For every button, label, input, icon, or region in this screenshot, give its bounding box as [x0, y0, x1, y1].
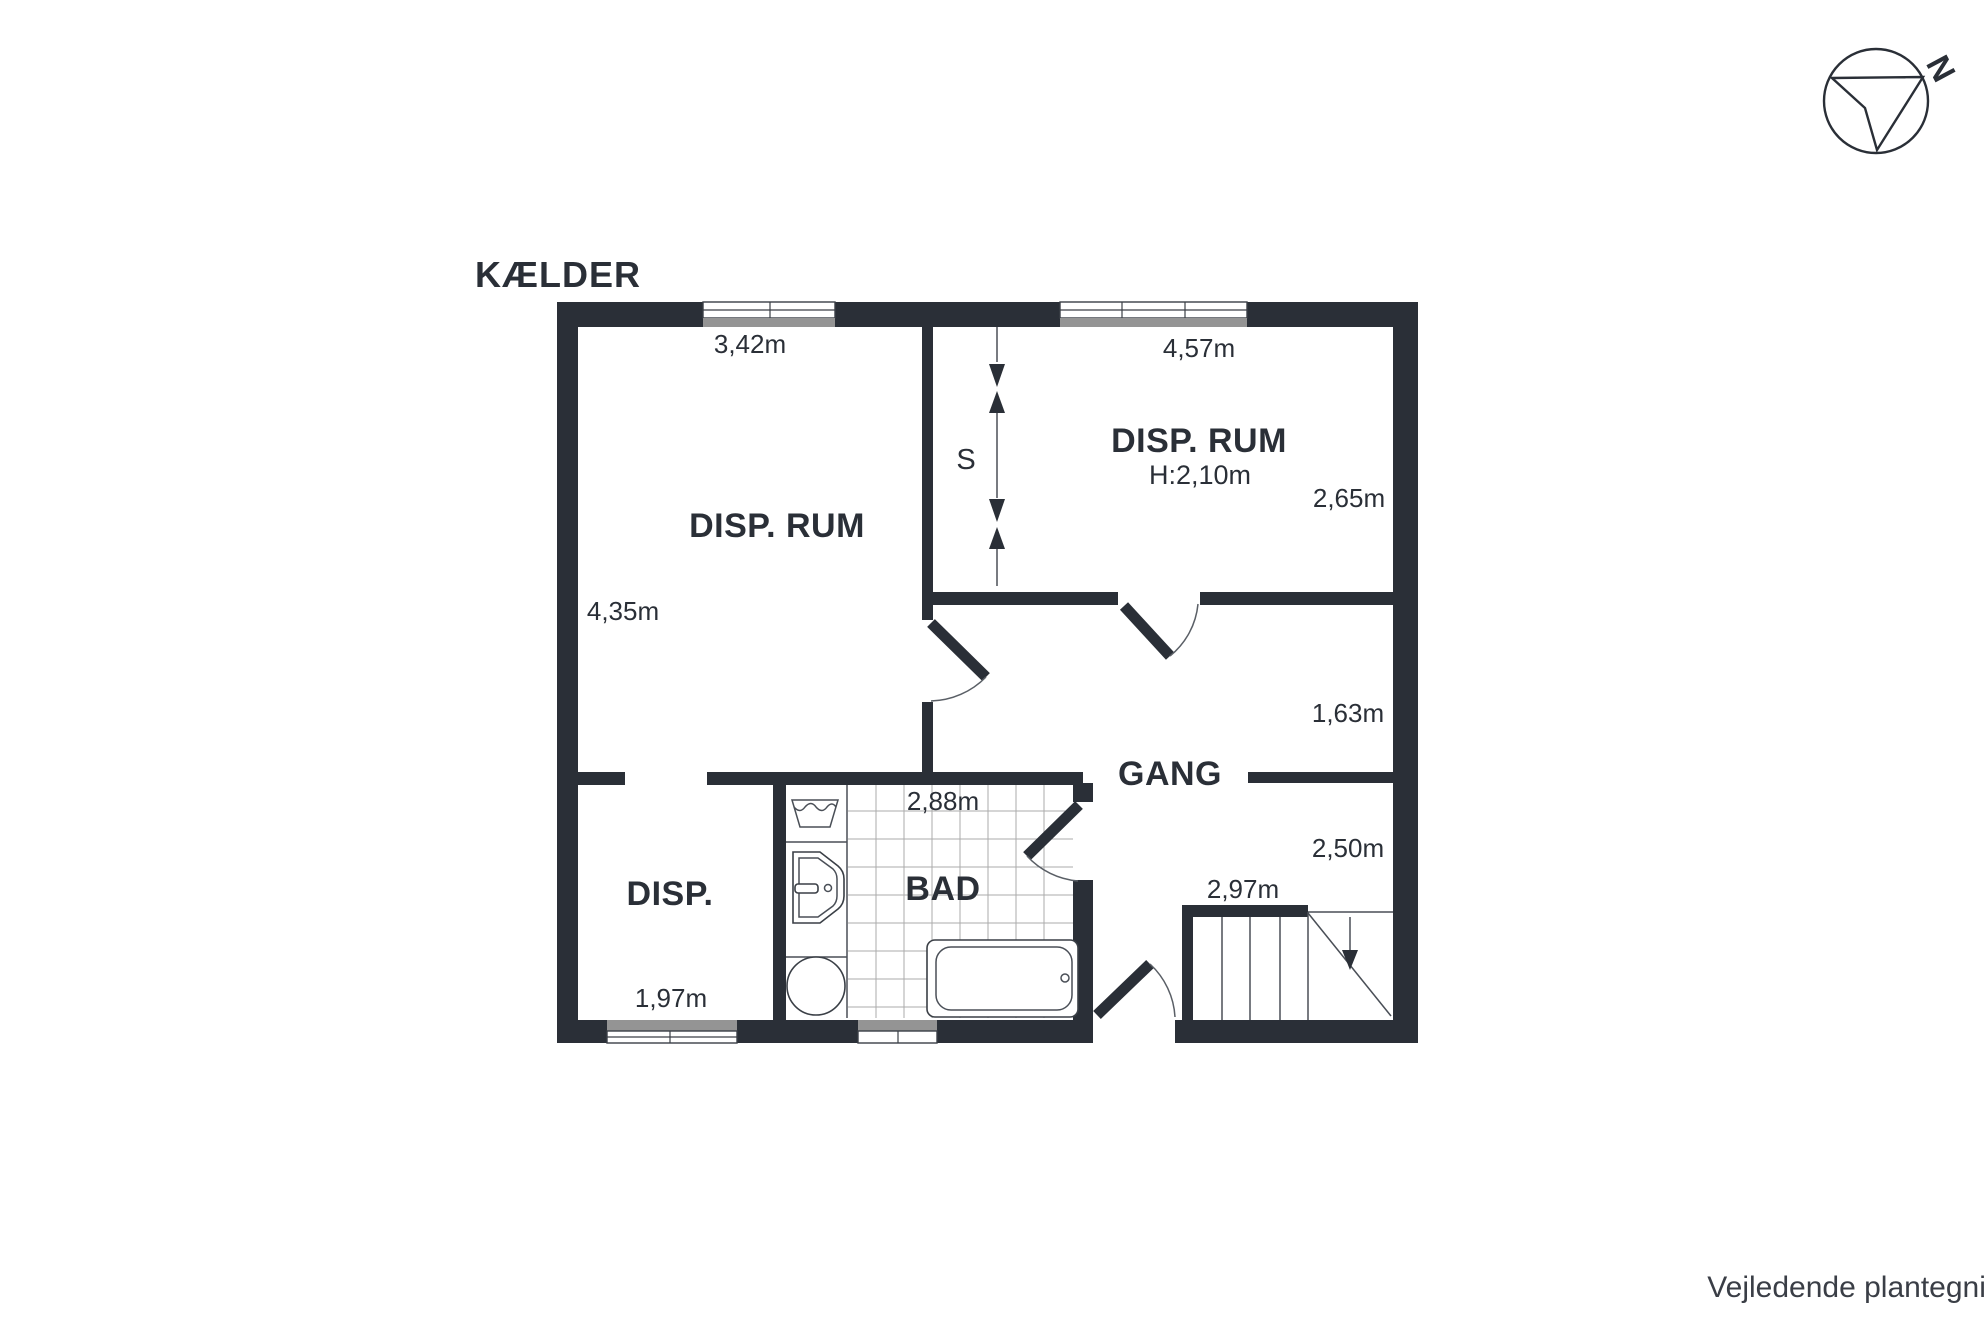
room-label-disp: DISP. — [627, 875, 714, 913]
stairs-direction-arrow-icon — [1342, 917, 1358, 970]
compass-n-label: N — [1919, 49, 1963, 87]
room-label-disp-rum-left: DISP. RUM — [689, 507, 865, 545]
shaft-duct-symbol — [989, 327, 1005, 586]
window-bottom-bad — [858, 1020, 937, 1043]
window-top-right — [1060, 302, 1247, 327]
room-label-bad: BAD — [905, 870, 980, 908]
dim-bad-width: 2,88m — [907, 786, 979, 816]
ceiling-height-label: H:2,10m — [1149, 460, 1251, 490]
room-label-disp-rum-right: DISP. RUM — [1111, 422, 1287, 460]
floor-plan-svg: N KÆLDER DISP. RUM 3,42m 4,35m DISP. RUM… — [0, 0, 1984, 1323]
dim-disp-rum-left-depth: 4,35m — [587, 596, 659, 626]
dim-gang-east-width: 2,50m — [1312, 833, 1384, 863]
door-disp-rum-left-to-gang — [931, 623, 986, 701]
door-gang-to-disp-rum-right — [1124, 604, 1198, 656]
disclaimer-text: Vejledende plantegning uden ansvar — [1707, 1271, 1984, 1304]
stairs — [1182, 905, 1393, 1020]
room-label-gang: GANG — [1118, 755, 1222, 793]
round-fixture-icon — [787, 957, 845, 1015]
bathtub-icon — [927, 940, 1078, 1017]
dim-disp-rum-right-width: 4,57m — [1163, 333, 1235, 363]
dim-disp-rum-left-width: 3,42m — [714, 329, 786, 359]
compass-circle-icon — [1824, 49, 1928, 153]
dim-disp-rum-right-depth: 2,65m — [1313, 483, 1385, 513]
page-title: KÆLDER — [475, 254, 641, 295]
shaft-label: S — [956, 444, 975, 476]
dim-stairs-width: 2,97m — [1207, 874, 1279, 904]
bad-fixtures — [786, 785, 848, 1018]
dim-disp-width: 1,97m — [635, 983, 707, 1013]
north-compass: N — [1824, 49, 1963, 153]
door-gang-exterior — [1097, 964, 1175, 1017]
window-top-left — [703, 302, 835, 327]
north-arrow-icon — [1832, 77, 1923, 150]
dim-gang-depth: 1,63m — [1312, 698, 1384, 728]
window-bottom-left — [607, 1020, 737, 1043]
floor-plan-page: N KÆLDER DISP. RUM 3,42m 4,35m DISP. RUM… — [0, 0, 1984, 1323]
door-bad — [1027, 805, 1079, 881]
